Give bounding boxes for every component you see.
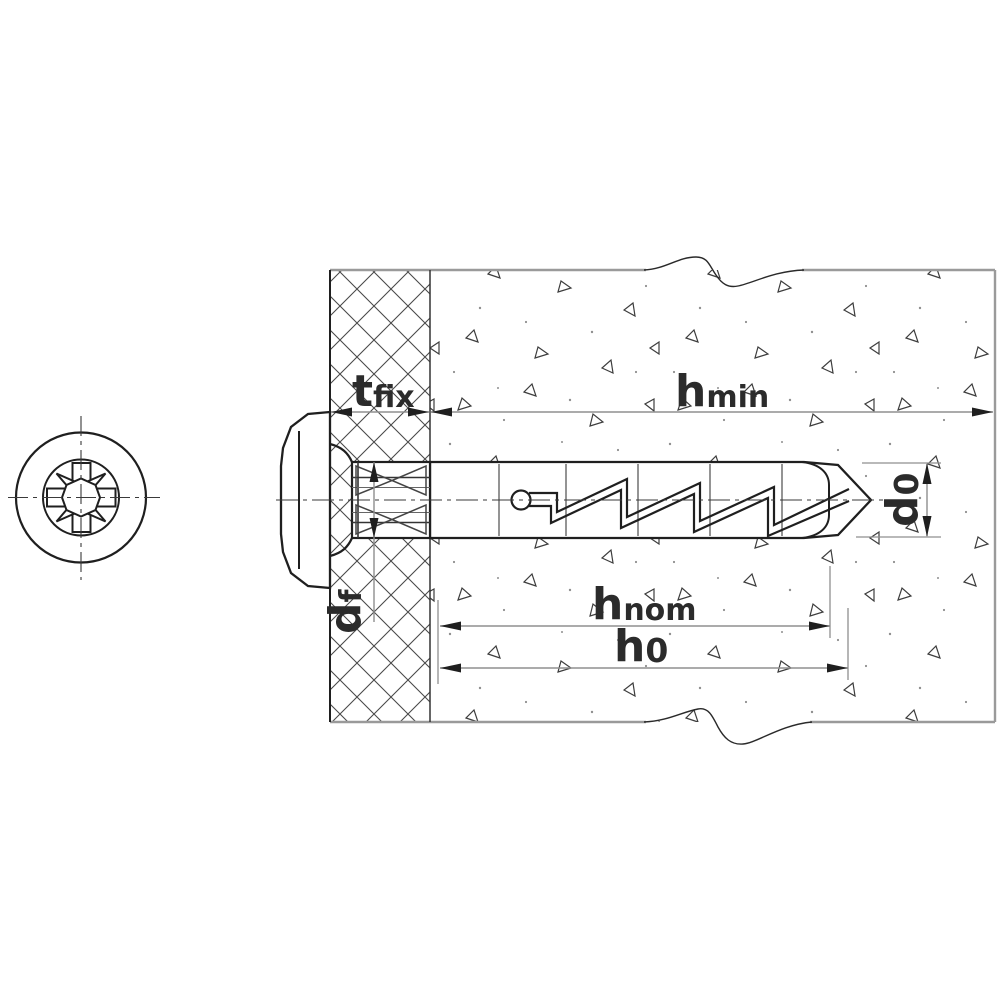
d-f-label: df <box>320 589 371 635</box>
section-view: tfix hmin hnom <box>276 257 995 744</box>
front-view-screw-head <box>8 416 160 580</box>
technical-drawing-page: tfix hmin hnom <box>0 0 1000 1000</box>
anchor-installation-drawing: tfix hmin hnom <box>0 0 1000 1000</box>
